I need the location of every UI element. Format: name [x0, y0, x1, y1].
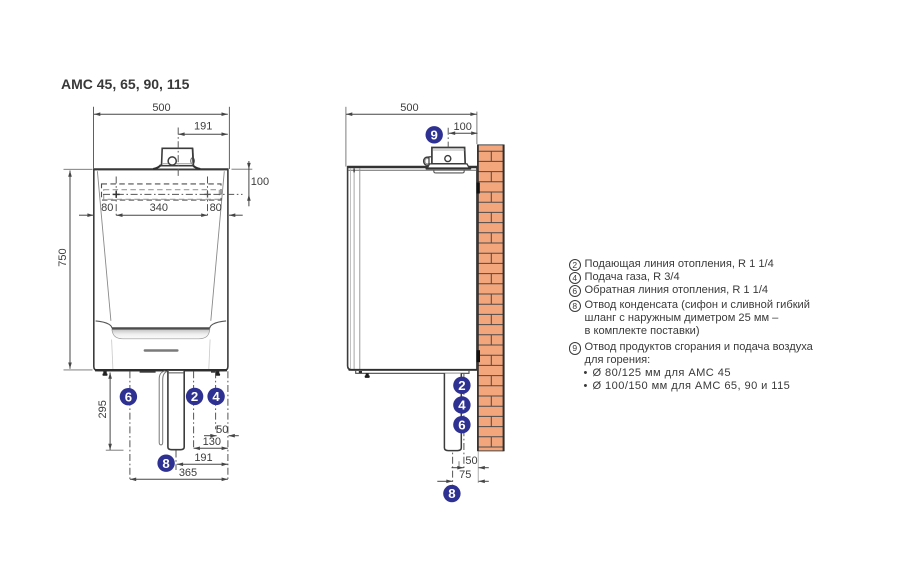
svg-text:9: 9: [431, 127, 438, 142]
svg-text:130: 130: [203, 436, 221, 448]
svg-text:100: 100: [454, 121, 472, 133]
svg-text:100: 100: [251, 176, 269, 188]
svg-text:75: 75: [459, 469, 471, 481]
svg-text:191: 191: [194, 452, 212, 464]
svg-text:50: 50: [465, 455, 477, 467]
svg-text:2: 2: [191, 389, 198, 404]
svg-text:191: 191: [194, 120, 212, 132]
svg-text:295: 295: [97, 400, 109, 418]
svg-text:500: 500: [152, 102, 170, 114]
svg-text:80: 80: [210, 202, 222, 214]
svg-text:8: 8: [162, 456, 169, 471]
svg-text:4: 4: [212, 389, 220, 404]
svg-text:340: 340: [150, 202, 168, 214]
svg-text:500: 500: [400, 102, 418, 114]
svg-text:750: 750: [57, 248, 69, 266]
svg-text:6: 6: [458, 417, 465, 432]
svg-text:8: 8: [448, 486, 455, 501]
svg-text:50: 50: [216, 424, 228, 436]
svg-text:80: 80: [101, 202, 113, 214]
svg-text:2: 2: [458, 378, 465, 393]
svg-text:365: 365: [179, 467, 197, 479]
svg-text:6: 6: [125, 389, 132, 404]
svg-text:4: 4: [458, 398, 466, 413]
